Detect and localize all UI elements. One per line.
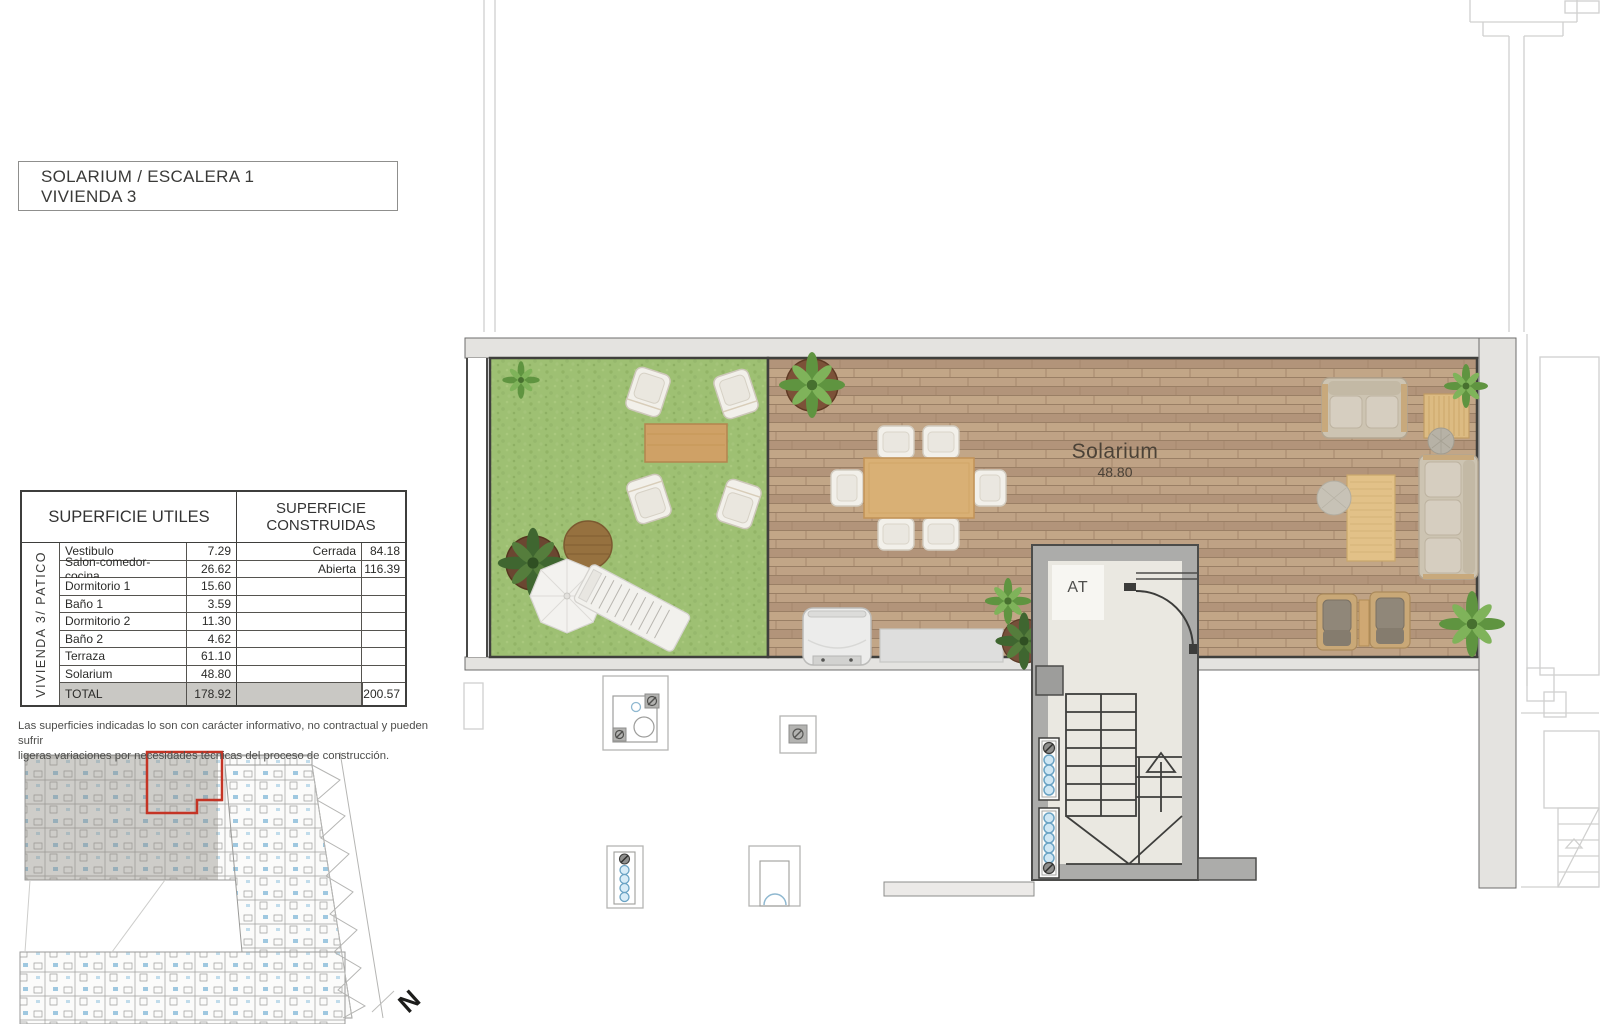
room-area: 3.59: [187, 596, 237, 614]
total-area: 178.92: [187, 683, 237, 705]
armchair: [1317, 594, 1357, 650]
built-value: 84.18: [362, 543, 405, 561]
fixture-box: [603, 676, 668, 750]
title-block: SOLARIUM / ESCALERA 1 VIVIENDA 3: [18, 161, 398, 211]
deck-counter: [880, 629, 1003, 662]
areas-table: SUPERFICIE UTILES SUPERFICIE CONSTRUIDAS…: [20, 490, 407, 707]
built-value: [362, 648, 405, 666]
dining-table: [864, 458, 974, 518]
fixture-box: [607, 846, 643, 908]
built-label: Cerrada: [237, 543, 362, 561]
built-value: [362, 631, 405, 649]
sofa-two-seat: [1322, 378, 1407, 438]
armchair: [1370, 592, 1410, 648]
built-label: Abierta: [237, 561, 362, 579]
service-fixtures: [603, 676, 816, 908]
room-name: Baño 1: [60, 596, 187, 614]
disclaimer: Las superficies indicadas lo son con car…: [18, 719, 438, 764]
room-name: Dormitorio 1: [60, 578, 187, 596]
title-line-2: VIVIENDA 3: [41, 187, 397, 207]
room-name: Dormitorio 2: [60, 613, 187, 631]
round-bush: [1428, 428, 1454, 454]
room-name: Baño 2: [60, 631, 187, 649]
wall-pillar: [1036, 666, 1063, 695]
total-built-value: 200.57: [362, 683, 405, 705]
built-label: [237, 666, 362, 684]
fixture-box: [749, 846, 800, 906]
shaded-block: [25, 755, 218, 880]
building-wing-bottom: [20, 952, 345, 1024]
built-label: [237, 648, 362, 666]
built-value: [362, 613, 405, 631]
between-table: [1359, 600, 1369, 646]
title-line-1: SOLARIUM / ESCALERA 1: [41, 167, 397, 187]
side-strip: [467, 358, 487, 657]
room-area: 7.29: [187, 543, 237, 561]
room-name: Solarium: [60, 666, 187, 684]
table-side-label: VIVIENDA 3/ PATICO: [22, 543, 60, 705]
disclaimer-line-1: Las superficies indicadas lo son con car…: [18, 719, 438, 749]
coffee-table: [1347, 475, 1395, 561]
room-label: Solarium 48.80: [1035, 440, 1195, 480]
radiator-strip: [1039, 738, 1059, 800]
room-area: 4.62: [187, 631, 237, 649]
built-value: [362, 666, 405, 684]
built-label: [237, 578, 362, 596]
disclaimer-line-2: ligeras variaciones por necesidades técn…: [18, 749, 438, 764]
room-area: 48.80: [187, 666, 237, 684]
key-plan: [20, 752, 394, 1024]
room-area: 61.10: [187, 648, 237, 666]
table-header-built: SUPERFICIE CONSTRUIDAS: [237, 492, 405, 543]
total-label: TOTAL: [60, 683, 187, 705]
room-name: Salon-comedor-cocina: [60, 561, 187, 579]
room-area: 11.30: [187, 613, 237, 631]
room-area-label: 48.80: [1035, 464, 1195, 480]
round-rug: [1317, 481, 1351, 515]
room-name-label: Solarium: [1035, 440, 1195, 464]
neighbor-stair-outline: [1558, 808, 1599, 887]
floor-plan-sheet: SOLARIUM / ESCALERA 1 VIVIENDA 3 SUPERFI…: [0, 0, 1600, 1024]
garden-table: [645, 424, 727, 462]
room-area: 26.62: [187, 561, 237, 579]
sofa-three-seat: [1419, 455, 1478, 579]
built-value: [362, 578, 405, 596]
room-name: Terraza: [60, 648, 187, 666]
fixture-box: [780, 716, 816, 753]
room-area: 15.60: [187, 578, 237, 596]
radiator-strip: [1039, 808, 1059, 878]
built-value: [362, 596, 405, 614]
built-label: [237, 613, 362, 631]
built-value: 116.39: [362, 561, 405, 579]
table-header-useful: SUPERFICIE UTILES: [22, 492, 237, 543]
total-built-label: [237, 683, 362, 705]
built-label: [237, 631, 362, 649]
stairwell-tag: AT: [1052, 579, 1104, 597]
bbq-grill: [803, 608, 871, 665]
built-label: [237, 596, 362, 614]
